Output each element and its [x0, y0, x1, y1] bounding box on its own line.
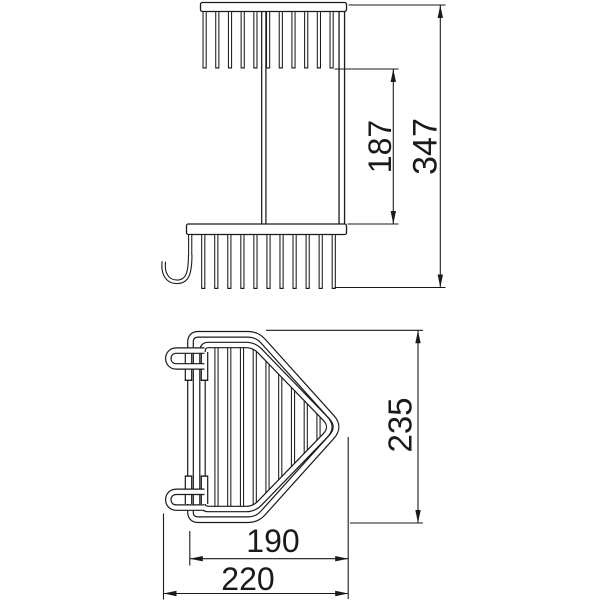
- dim-label-basket-width: 190: [246, 523, 299, 559]
- top-view: [168, 334, 336, 519]
- dim-label-basket-depth: 235: [382, 397, 419, 452]
- front-view: [164, 3, 347, 290]
- dim-label-overall-width: 220: [221, 561, 274, 597]
- dim-label-overall-height: 347: [407, 118, 445, 175]
- dim-label-shelf-spacing: 187: [362, 120, 398, 173]
- drawing-canvas: 187 347 235 190 220: [0, 0, 600, 600]
- technical-drawing: 187 347 235 190 220: [0, 0, 600, 600]
